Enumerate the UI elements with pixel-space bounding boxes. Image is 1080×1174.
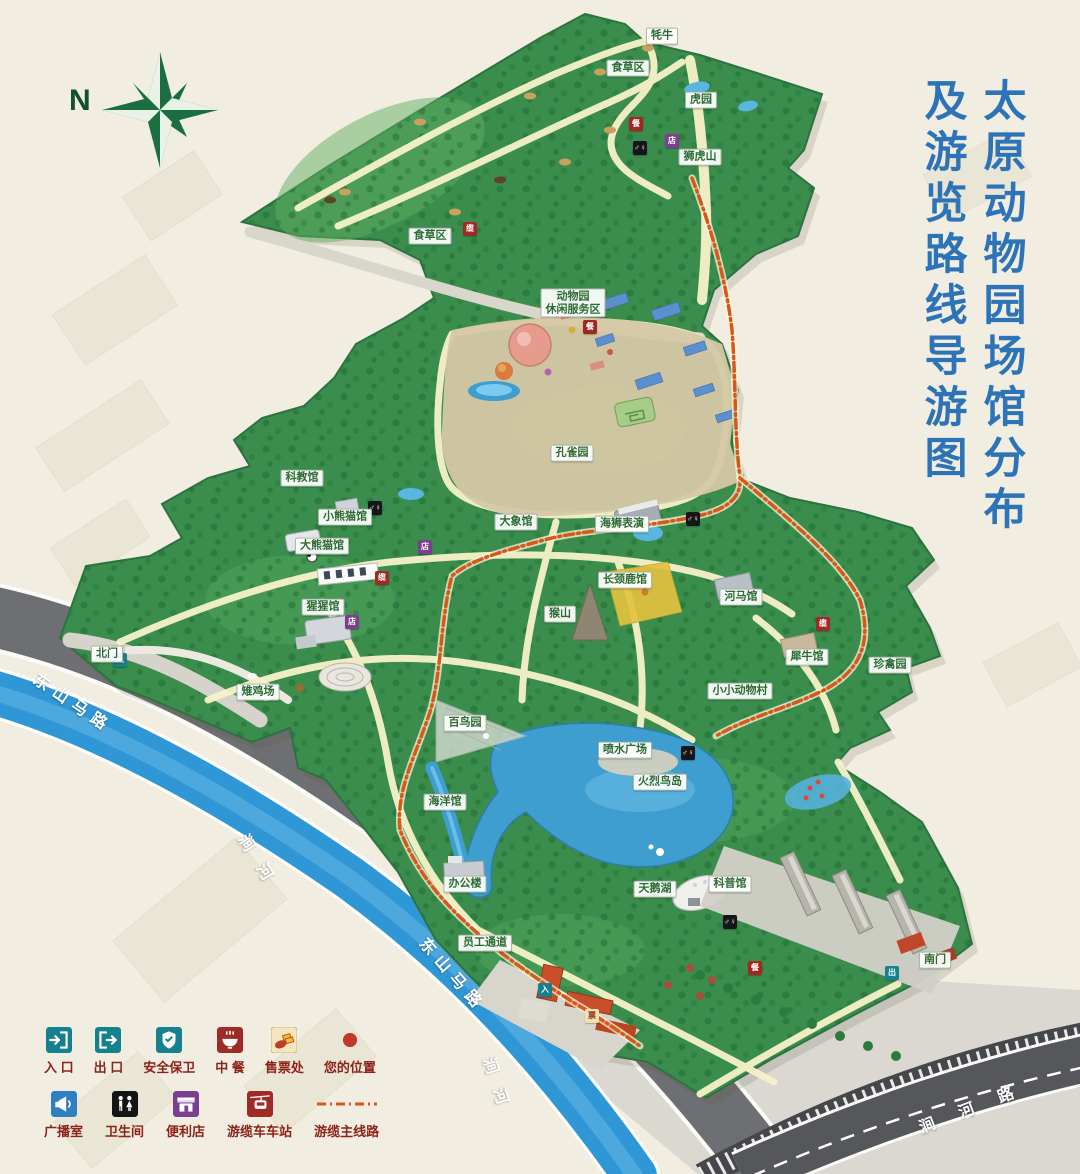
map-label-giraffe-house: 长颈鹿馆 — [598, 572, 652, 589]
map-label-tiger-garden: 虎园 — [685, 92, 717, 109]
map-label-swan-lake: 天鹅湖 — [634, 881, 677, 898]
legend-label: 便利店 — [166, 1121, 205, 1140]
legend-label: 广播室 — [44, 1121, 83, 1140]
legend-item-cable-car-station: 游缆车车站 — [227, 1090, 292, 1140]
toilet-marker-icon: ♂♀ — [723, 915, 737, 929]
map-label-mini-zoo-village: 小小动物村 — [708, 683, 773, 700]
legend-item-exit: 出 口 — [94, 1026, 124, 1076]
map-label-science-hall: 科教馆 — [281, 470, 324, 487]
legend-label: 您的位置 — [324, 1057, 376, 1076]
cable-station-marker-icon: 缆 — [375, 571, 389, 585]
cable-car-icon — [247, 1090, 273, 1118]
legend-label: 游缆车车站 — [227, 1121, 292, 1140]
map-label-herbivore-area-1: 食草区 — [607, 60, 650, 77]
map-label-red-panda-house: 小熊猫馆 — [318, 509, 372, 526]
map-label-office-building: 办公楼 — [444, 876, 487, 893]
store-icon — [173, 1090, 199, 1118]
page-title: 太原动物园场馆分布 及游览路线导游图 — [920, 78, 1022, 537]
map-label-orangutan-house: 猩猩馆 — [302, 599, 345, 616]
map-label-pheasant-yard: 雉鸡场 — [237, 684, 280, 701]
legend-label: 中 餐 — [215, 1057, 245, 1076]
legend-label: 游缆主线路 — [314, 1121, 379, 1140]
legend-label: 出 口 — [94, 1057, 124, 1076]
food-marker-icon: 餐 — [748, 961, 762, 975]
legend-item-your-location: 您的位置 — [324, 1026, 376, 1076]
cable-station-marker-icon: 缆 — [816, 617, 830, 631]
food-marker-icon: 餐 — [583, 320, 597, 334]
map-label-lion-tiger-hill: 狮虎山 — [679, 149, 722, 166]
map-label-flamingo-island: 火烈鸟岛 — [633, 774, 687, 791]
cable-line-icon — [316, 1090, 378, 1118]
store-marker-icon: 店 — [345, 615, 359, 629]
store-marker-icon: 店 — [665, 134, 679, 148]
ticket-icon — [271, 1026, 297, 1054]
food-bowl-icon — [217, 1026, 243, 1054]
cable-station-marker-icon: 缆 — [463, 222, 477, 236]
map-label-ocean-hall: 海洋馆 — [424, 794, 467, 811]
location-dot-icon — [337, 1026, 363, 1054]
map-label-sea-lion-show: 海狮表演 — [595, 516, 649, 533]
taiyuan-zoo-guide-map: N 太原动物园场馆分布 及游览路线导游图 东山马路 涧河 东山马路 涧河 涧河路… — [0, 0, 1080, 1174]
map-label-fountain-square: 喷水广场 — [598, 742, 652, 759]
legend-item-chinese-food: 中 餐 — [215, 1026, 245, 1076]
entrance-icon — [46, 1026, 72, 1054]
map-label-elephant-house: 大象馆 — [495, 514, 538, 531]
exit-marker-icon: 出 — [885, 966, 899, 980]
map-label-rhino-house: 犀牛馆 — [786, 649, 829, 666]
security-guard-icon — [156, 1026, 182, 1054]
entrance-marker-icon: 入 — [538, 983, 552, 997]
map-label-rare-birds-garden: 珍禽园 — [869, 657, 912, 674]
legend-item-cable-main-line: 游缆主线路 — [314, 1090, 379, 1140]
title-line-1: 太原动物园场馆分布 — [979, 78, 1022, 537]
map-label-peacock-garden: 孔雀园 — [551, 445, 594, 462]
compass-n-label: N — [69, 84, 91, 118]
ticket-marker-icon: 票 — [585, 1009, 599, 1023]
legend-label: 入 口 — [44, 1057, 74, 1076]
map-label-leisure-zone: 动物园 休闲服务区 — [541, 288, 606, 317]
compass-rose: N — [55, 42, 255, 177]
map-label-bird-garden: 百鸟园 — [444, 715, 487, 732]
exit-icon — [95, 1026, 121, 1054]
title-line-2: 及游览路线导游图 — [920, 78, 963, 537]
store-marker-icon: 店 — [418, 540, 432, 554]
legend-label: 售票处 — [265, 1057, 304, 1076]
legend-item-security: 安全保卫 — [143, 1026, 195, 1076]
legend-item-entrance: 入 口 — [44, 1026, 74, 1076]
toilet-marker-icon: ♂♀ — [633, 141, 647, 155]
toilet-marker-icon: ♂♀ — [681, 746, 695, 760]
legend-item-convenience-store: 便利店 — [166, 1090, 205, 1140]
map-label-science-museum: 科普馆 — [709, 876, 752, 893]
legend-label: 卫生间 — [105, 1121, 144, 1140]
map-label-monkey-hill: 猴山 — [544, 606, 576, 623]
toilet-marker-icon: ♂♀ — [686, 512, 700, 526]
legend-item-broadcast-room: 广播室 — [44, 1090, 83, 1140]
legend-item-ticket-office: 售票处 — [265, 1026, 304, 1076]
food-marker-icon: 餐 — [629, 117, 643, 131]
map-label-north-gate: 北门 — [91, 646, 123, 663]
map-label-herbivore-area-2: 食草区 — [409, 228, 452, 245]
map-label-giant-panda-house: 大熊猫馆 — [295, 538, 349, 555]
legend-item-restroom: 卫生间 — [105, 1090, 144, 1140]
map-label-hippo-house: 河马馆 — [720, 589, 763, 606]
legend-label: 安全保卫 — [143, 1057, 195, 1076]
legend: 入 口 出 口 安全保卫 中 餐 — [44, 1026, 444, 1140]
restroom-icon — [112, 1090, 138, 1118]
megaphone-icon — [51, 1090, 77, 1118]
map-label-south-gate: 南门 — [919, 952, 951, 969]
map-label-yak: 牦牛 — [646, 28, 678, 45]
map-label-staff-passage: 员工通道 — [458, 935, 512, 952]
